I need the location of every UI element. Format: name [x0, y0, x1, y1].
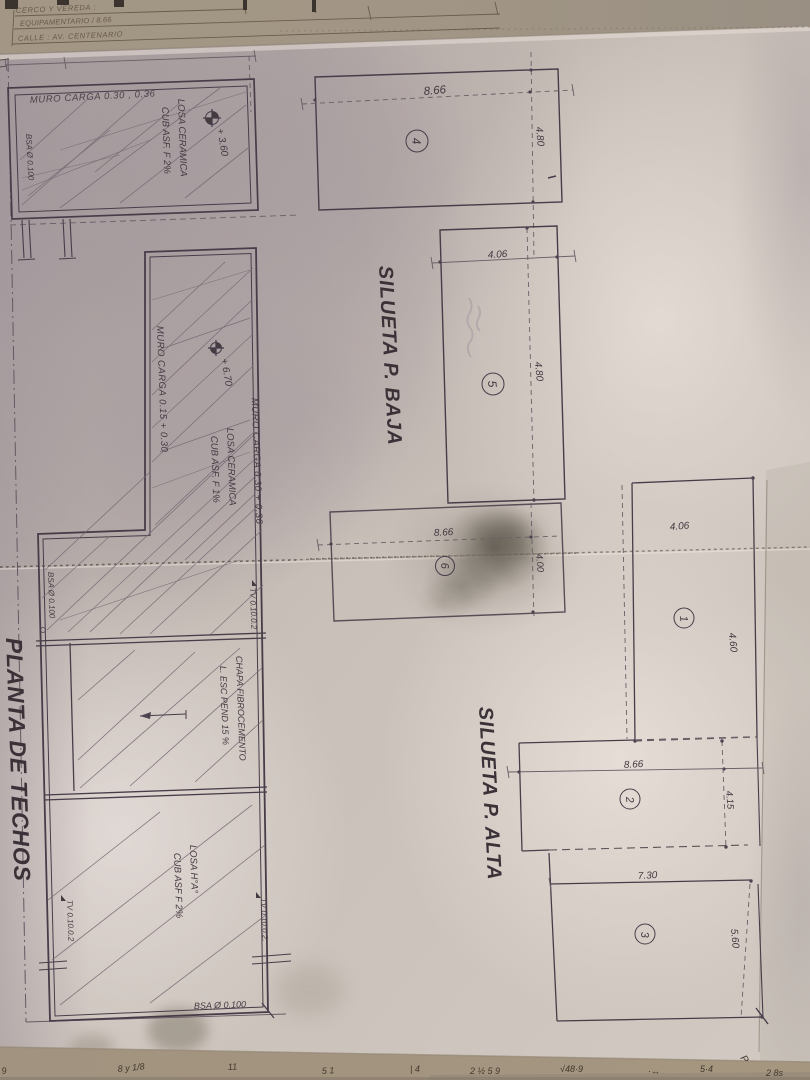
svg-text:2 ½ 5 9: 2 ½ 5 9 — [469, 1066, 500, 1076]
svg-text:4.00: 4.00 — [533, 553, 546, 573]
svg-text:√48·9: √48·9 — [560, 1064, 583, 1074]
svg-text:4.15: 4.15 — [723, 790, 736, 810]
svg-text:8.66: 8.66 — [624, 759, 644, 771]
svg-text:BSA Ø 0.100: BSA Ø 0.100 — [46, 572, 57, 619]
svg-text:4.80: 4.80 — [533, 126, 546, 147]
svg-text:CUB ASF. F 1%: CUB ASF. F 1% — [208, 436, 221, 504]
svg-text:BSA Ø 0.100: BSA Ø 0.100 — [194, 999, 247, 1011]
svg-text:·↔: ·↔ — [648, 1066, 660, 1076]
svg-text:LOSA H°A°: LOSA H°A° — [187, 845, 200, 894]
svg-text:8.66: 8.66 — [423, 84, 447, 98]
svg-text:2 8s: 2 8s — [765, 1068, 784, 1078]
svg-text:11: 11 — [227, 1061, 237, 1072]
svg-text:TV 0.10.0.2: TV 0.10.0.2 — [248, 588, 258, 630]
svg-text:CUB ASF. F 2%: CUB ASF. F 2% — [159, 107, 172, 175]
svg-text:TV 0.10.0.2.: TV 0.10.0.2. — [259, 898, 270, 942]
svg-text:5·4: 5·4 — [700, 1064, 713, 1074]
svg-text:1: 1 — [677, 615, 689, 622]
svg-text:4.80: 4.80 — [532, 361, 545, 382]
svg-text:5 1: 5 1 — [321, 1065, 334, 1076]
svg-text:8.66: 8.66 — [434, 527, 454, 539]
svg-text:2: 2 — [623, 795, 636, 803]
svg-text:4.60: 4.60 — [726, 632, 739, 653]
svg-text:TV 0.10.0.2: TV 0.10.0.2 — [65, 900, 75, 942]
svg-text:4.06: 4.06 — [488, 249, 508, 261]
svg-text:4.06: 4.06 — [669, 521, 690, 533]
svg-text:5.60: 5.60 — [728, 928, 741, 949]
svg-text:CUB ASF F 2%: CUB ASF F 2% — [171, 853, 184, 919]
svg-text:7.30: 7.30 — [638, 870, 658, 882]
svg-text:| 4: | 4 — [410, 1064, 420, 1074]
